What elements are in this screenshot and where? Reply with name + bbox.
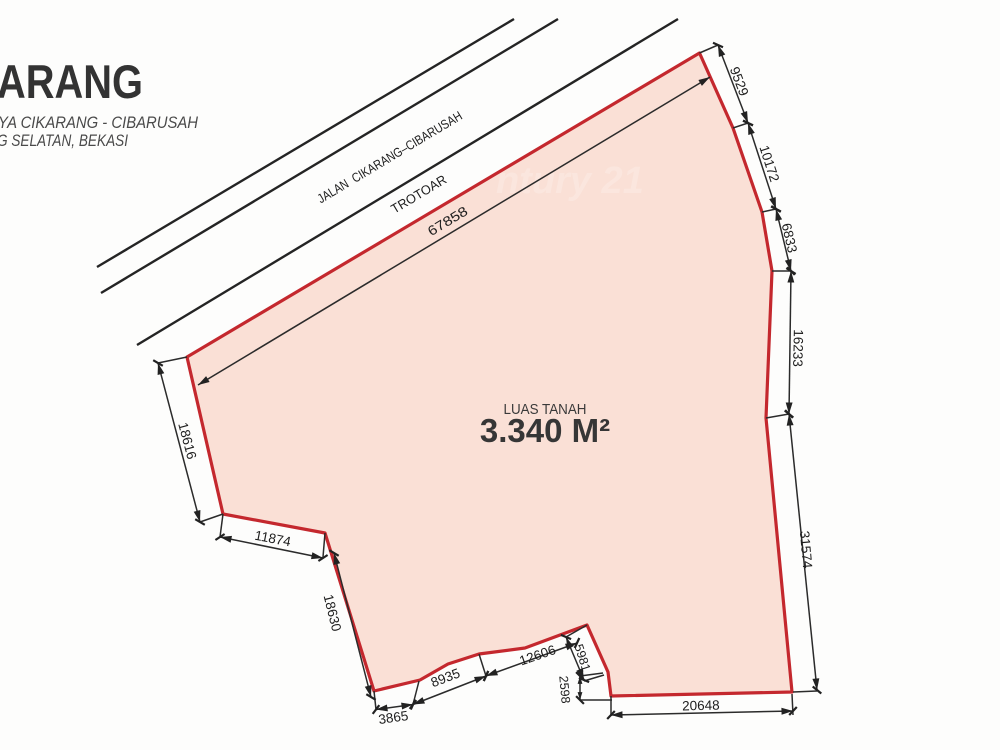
svg-text:20648: 20648	[682, 698, 720, 714]
svg-text:YA CIKARANG - CIBARUSAH: YA CIKARANG - CIBARUSAH	[0, 113, 199, 132]
svg-text:ARANG: ARANG	[0, 55, 143, 108]
svg-text:G SELATAN, BEKASI: G SELATAN, BEKASI	[0, 131, 128, 150]
svg-text:ntury 21: ntury 21	[496, 160, 644, 202]
svg-text:3.340 M²: 3.340 M²	[480, 412, 610, 449]
svg-text:2598: 2598	[556, 675, 572, 704]
svg-text:16233: 16233	[790, 329, 806, 367]
